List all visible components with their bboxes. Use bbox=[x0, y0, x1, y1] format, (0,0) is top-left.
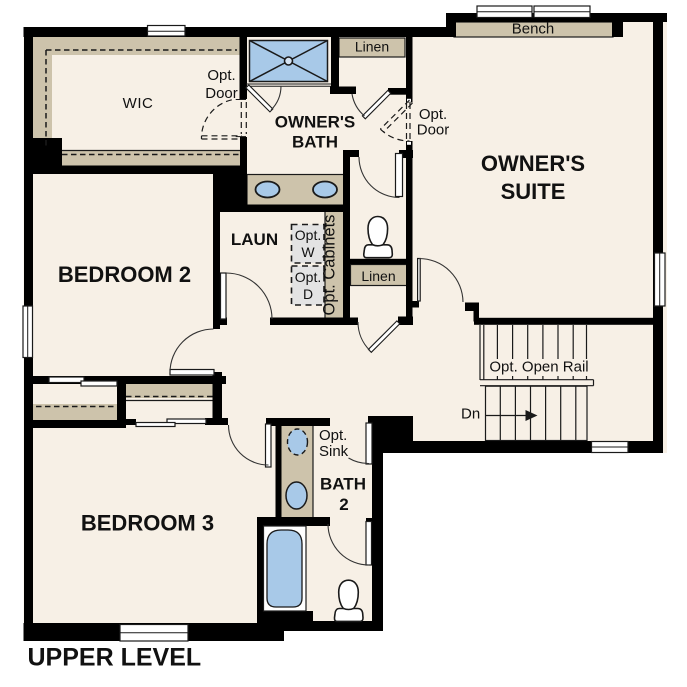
svg-text:BATH: BATH bbox=[320, 475, 366, 494]
svg-text:Door: Door bbox=[205, 85, 238, 102]
svg-text:Opt. Cabinets: Opt. Cabinets bbox=[321, 215, 339, 316]
svg-text:SUITE: SUITE bbox=[501, 179, 566, 204]
svg-text:WIC: WIC bbox=[123, 95, 154, 112]
svg-text:Opt.: Opt. bbox=[295, 227, 321, 243]
svg-text:Bench: Bench bbox=[512, 21, 555, 38]
svg-text:Opt. Open Rail: Opt. Open Rail bbox=[489, 359, 588, 376]
svg-text:2: 2 bbox=[339, 495, 348, 514]
svg-text:BEDROOM 2: BEDROOM 2 bbox=[58, 262, 191, 287]
svg-text:BATH: BATH bbox=[292, 132, 338, 151]
svg-text:OWNER'S: OWNER'S bbox=[275, 113, 356, 132]
svg-text:UPPER LEVEL: UPPER LEVEL bbox=[28, 644, 202, 672]
svg-text:Opt.: Opt. bbox=[207, 67, 235, 84]
svg-text:Door: Door bbox=[417, 122, 450, 139]
svg-text:Linen: Linen bbox=[355, 38, 389, 54]
svg-text:LAUN: LAUN bbox=[231, 230, 278, 249]
svg-text:D: D bbox=[303, 286, 313, 302]
svg-text:Opt.: Opt. bbox=[319, 427, 347, 444]
svg-text:Linen: Linen bbox=[361, 268, 395, 284]
svg-text:W: W bbox=[301, 244, 315, 260]
svg-text:Opt.: Opt. bbox=[419, 106, 447, 123]
svg-text:BEDROOM 3: BEDROOM 3 bbox=[81, 511, 214, 536]
svg-text:Sink: Sink bbox=[319, 443, 349, 460]
svg-text:Opt.: Opt. bbox=[295, 269, 321, 285]
svg-text:Dn: Dn bbox=[461, 406, 480, 423]
svg-text:OWNER'S: OWNER'S bbox=[481, 151, 585, 176]
